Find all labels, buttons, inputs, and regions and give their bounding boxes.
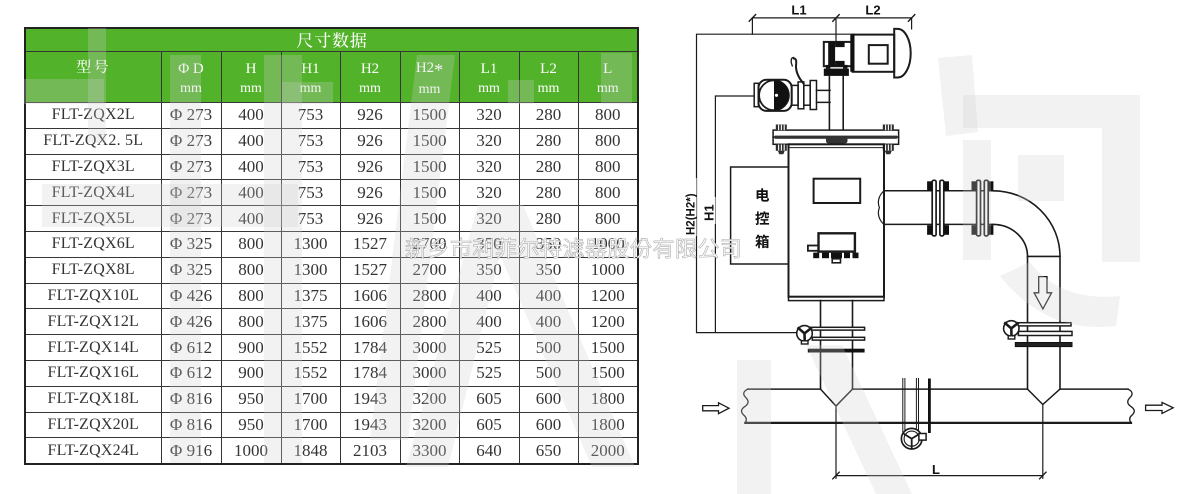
svg-text:L1: L1	[791, 3, 806, 18]
svg-text:H2(H2*): H2(H2*)	[686, 193, 698, 235]
svg-text:L2: L2	[865, 3, 880, 18]
svg-text:H1: H1	[702, 204, 717, 221]
svg-text:L: L	[932, 462, 940, 477]
